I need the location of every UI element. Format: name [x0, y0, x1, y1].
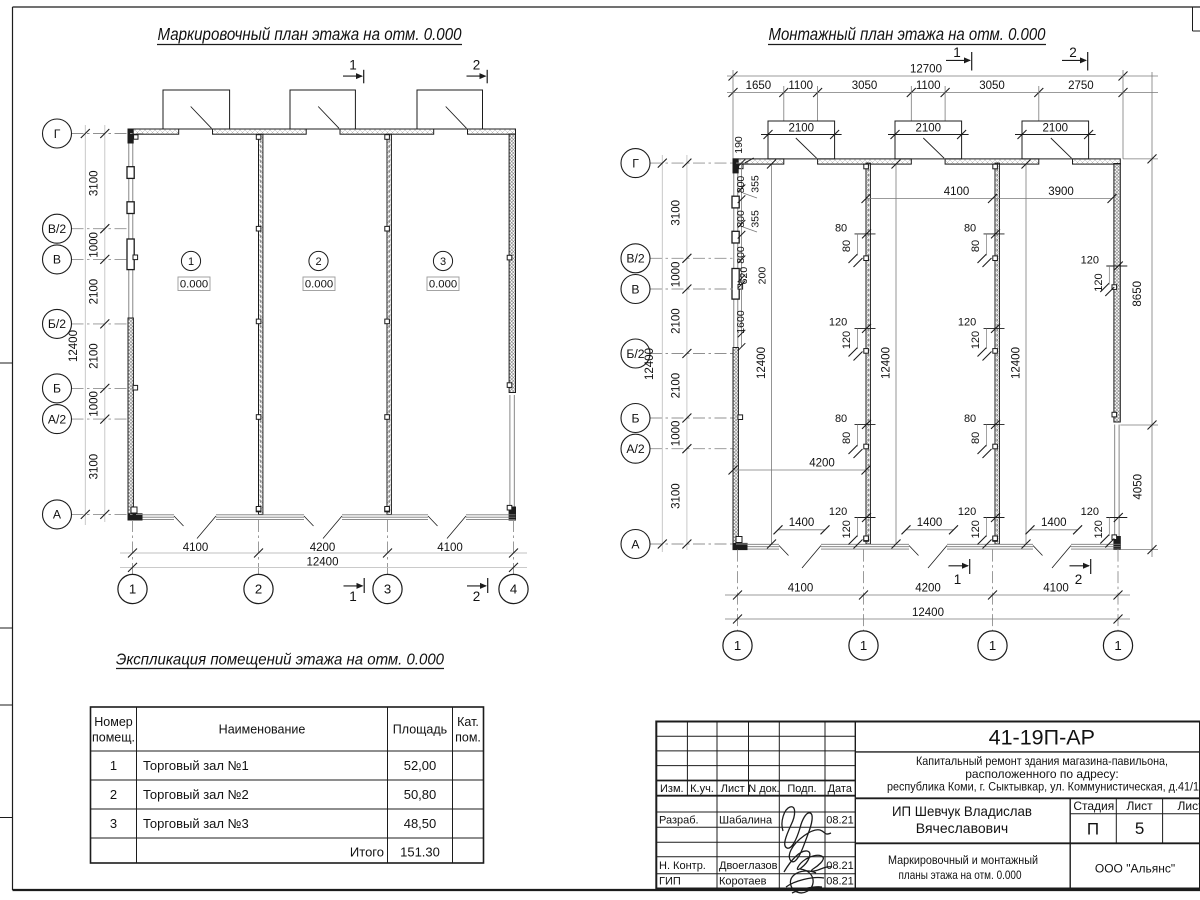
svg-text:В: В [631, 282, 639, 296]
svg-text:Площадь: Площадь [393, 723, 447, 737]
svg-text:4: 4 [510, 582, 517, 597]
svg-text:1600: 1600 [735, 310, 747, 334]
svg-text:5: 5 [1135, 819, 1144, 838]
svg-text:Торговый зал №3: Торговый зал №3 [143, 816, 249, 831]
svg-text:4100: 4100 [1043, 583, 1069, 595]
svg-text:1: 1 [860, 638, 867, 653]
svg-text:2100: 2100 [89, 279, 101, 305]
svg-text:1400: 1400 [917, 517, 943, 529]
svg-text:4200: 4200 [310, 542, 336, 554]
svg-text:08.21: 08.21 [826, 815, 854, 827]
svg-text:Дата: Дата [828, 783, 853, 795]
svg-text:Торговый зал №1: Торговый зал №1 [143, 758, 249, 773]
svg-text:12400: 12400 [1011, 347, 1023, 379]
svg-text:ИП Шевчук Владислав: ИП Шевчук Владислав [892, 803, 1032, 819]
svg-text:80: 80 [841, 240, 853, 252]
svg-text:А/2: А/2 [626, 442, 645, 456]
svg-text:1100: 1100 [788, 80, 813, 92]
svg-text:Лист: Лист [1127, 799, 1154, 813]
svg-text:Капитальный ремонт здания мага: Капитальный ремонт здания магазина-павил… [916, 754, 1168, 768]
svg-text:Изм.: Изм. [660, 783, 684, 795]
svg-text:Вячеславович: Вячеславович [916, 820, 1008, 836]
svg-text:3100: 3100 [671, 483, 683, 509]
svg-text:80: 80 [970, 240, 982, 252]
svg-text:4100: 4100 [788, 583, 814, 595]
svg-text:4200: 4200 [915, 583, 941, 595]
svg-text:1: 1 [349, 589, 357, 604]
svg-text:48,50: 48,50 [404, 816, 437, 831]
svg-text:1000: 1000 [671, 262, 683, 288]
svg-text:0.000: 0.000 [429, 279, 457, 291]
svg-text:80: 80 [835, 223, 847, 235]
svg-text:2100: 2100 [671, 308, 683, 334]
svg-text:12400: 12400 [68, 330, 80, 362]
svg-text:Экспликация помещений этажа на: Экспликация помещений этажа на отм. 0.00… [116, 652, 444, 669]
svg-text:1: 1 [129, 582, 136, 597]
svg-text:1: 1 [953, 45, 961, 60]
svg-text:4200: 4200 [809, 458, 835, 470]
svg-text:Монтажный план этажа на отм. 0: Монтажный план этажа на отм. 0.000 [769, 24, 1046, 44]
svg-text:12400: 12400 [912, 607, 944, 619]
svg-text:2: 2 [315, 256, 321, 268]
svg-text:1650: 1650 [746, 80, 772, 92]
svg-text:А: А [53, 508, 62, 522]
svg-text:4050: 4050 [1133, 474, 1145, 500]
svg-text:355: 355 [750, 175, 762, 193]
svg-text:12400: 12400 [756, 347, 768, 379]
svg-text:52,00: 52,00 [404, 758, 437, 773]
svg-text:помещ.: помещ. [92, 731, 135, 745]
svg-text:N док.: N док. [748, 783, 779, 795]
svg-text:120: 120 [1081, 255, 1099, 267]
svg-text:2: 2 [110, 787, 117, 802]
svg-text:Шабалина: Шабалина [719, 815, 773, 827]
svg-text:4100: 4100 [944, 186, 970, 198]
svg-text:4100: 4100 [437, 542, 463, 554]
svg-text:1: 1 [1114, 638, 1121, 653]
svg-text:2: 2 [1069, 45, 1077, 60]
svg-text:1400: 1400 [789, 517, 815, 529]
svg-text:2750: 2750 [1068, 80, 1094, 92]
svg-text:Листов: Листов [1178, 799, 1200, 813]
svg-text:355: 355 [750, 210, 762, 228]
svg-text:Подп.: Подп. [787, 783, 816, 795]
svg-text:Б/2: Б/2 [626, 347, 644, 361]
svg-text:П: П [1087, 820, 1099, 839]
svg-text:пом.: пом. [455, 731, 481, 745]
svg-text:3100: 3100 [89, 454, 101, 480]
svg-text:1: 1 [110, 758, 117, 773]
svg-text:2100: 2100 [89, 343, 101, 369]
svg-text:120: 120 [958, 506, 976, 518]
svg-text:Г: Г [632, 156, 639, 170]
svg-text:120: 120 [841, 331, 853, 349]
svg-text:2: 2 [1075, 572, 1083, 587]
svg-text:1: 1 [954, 572, 962, 587]
svg-text:К.уч.: К.уч. [690, 783, 714, 795]
svg-text:1100: 1100 [916, 80, 941, 92]
svg-text:Б/2: Б/2 [48, 317, 66, 331]
svg-text:12700: 12700 [910, 64, 942, 76]
svg-text:планы этажа на отм. 0.000: планы этажа на отм. 0.000 [899, 868, 1022, 882]
svg-text:Торговый зал №2: Торговый зал №2 [143, 787, 249, 802]
svg-text:Наименование: Наименование [219, 723, 306, 737]
svg-text:3: 3 [440, 256, 446, 268]
svg-text:А/2: А/2 [48, 412, 67, 426]
svg-text:800: 800 [735, 176, 747, 194]
svg-text:08.21: 08.21 [826, 860, 854, 872]
svg-text:Маркировочный план этажа на от: Маркировочный план этажа на отм. 0.000 [158, 24, 462, 44]
svg-text:1: 1 [989, 638, 996, 653]
svg-text:В: В [53, 253, 61, 267]
svg-text:8650: 8650 [1132, 281, 1144, 307]
svg-text:2100: 2100 [1043, 123, 1069, 135]
svg-text:1000: 1000 [671, 421, 683, 447]
svg-text:80: 80 [835, 413, 847, 425]
svg-text:ГИП: ГИП [659, 876, 681, 888]
svg-text:41-19П-АР: 41-19П-АР [989, 726, 1095, 750]
svg-text:2100: 2100 [916, 123, 942, 135]
svg-text:620: 620 [738, 267, 750, 285]
svg-text:А: А [631, 537, 640, 551]
svg-text:190: 190 [733, 136, 745, 154]
svg-text:В/2: В/2 [48, 222, 67, 236]
svg-text:3100: 3100 [89, 171, 101, 197]
svg-text:Коротаев: Коротаев [719, 876, 767, 888]
svg-text:80: 80 [841, 432, 853, 444]
svg-text:800: 800 [735, 246, 747, 264]
svg-text:200: 200 [757, 267, 769, 285]
svg-text:80: 80 [964, 223, 976, 235]
svg-text:2: 2 [473, 58, 481, 73]
svg-text:Маркировочный и монтажный: Маркировочный и монтажный [888, 853, 1038, 867]
svg-text:3: 3 [384, 582, 391, 597]
svg-text:1: 1 [734, 638, 741, 653]
svg-text:Стадия: Стадия [1073, 799, 1114, 813]
svg-text:1000: 1000 [89, 391, 101, 417]
svg-text:12400: 12400 [307, 556, 339, 568]
svg-text:80: 80 [964, 413, 976, 425]
svg-text:12400: 12400 [644, 348, 656, 380]
svg-text:151.30: 151.30 [400, 845, 440, 860]
svg-text:ООО "Альянс": ООО "Альянс" [1095, 862, 1175, 876]
svg-text:1: 1 [349, 58, 357, 73]
svg-text:1400: 1400 [1041, 517, 1067, 529]
svg-text:08.21: 08.21 [826, 876, 854, 888]
svg-text:Двоеглазов: Двоеглазов [719, 860, 778, 872]
svg-text:2100: 2100 [789, 123, 815, 135]
svg-text:120: 120 [1093, 520, 1105, 538]
svg-text:12400: 12400 [881, 347, 893, 379]
svg-text:120: 120 [829, 317, 847, 329]
svg-text:республика Коми, г. Сыктывкар,: республика Коми, г. Сыктывкар, ул. Комму… [887, 780, 1199, 794]
svg-text:Б: Б [632, 411, 640, 425]
svg-text:В/2: В/2 [626, 252, 645, 266]
svg-text:Разраб.: Разраб. [659, 815, 699, 827]
svg-text:Лист: Лист [721, 783, 745, 795]
svg-text:1000: 1000 [89, 232, 101, 258]
svg-text:2100: 2100 [671, 373, 683, 399]
svg-text:3100: 3100 [671, 200, 683, 226]
svg-text:3050: 3050 [852, 80, 878, 92]
svg-text:2: 2 [473, 589, 481, 604]
svg-text:50,80: 50,80 [404, 787, 437, 802]
svg-text:3050: 3050 [979, 80, 1005, 92]
svg-text:Итого: Итого [350, 845, 384, 860]
svg-text:800: 800 [735, 210, 747, 228]
svg-text:Номер: Номер [94, 715, 133, 729]
svg-text:3: 3 [110, 816, 117, 831]
svg-text:120: 120 [958, 317, 976, 329]
svg-text:Н. Контр.: Н. Контр. [659, 860, 706, 872]
svg-text:0.000: 0.000 [180, 279, 208, 291]
svg-text:4100: 4100 [183, 542, 209, 554]
svg-text:2: 2 [255, 582, 262, 597]
svg-text:80: 80 [970, 432, 982, 444]
svg-text:3900: 3900 [1048, 186, 1074, 198]
svg-text:Б: Б [53, 382, 61, 396]
svg-text:120: 120 [829, 506, 847, 518]
svg-text:0.000: 0.000 [305, 279, 333, 291]
svg-text:120: 120 [970, 520, 982, 538]
svg-text:120: 120 [841, 520, 853, 538]
svg-text:120: 120 [1081, 506, 1099, 518]
svg-text:120: 120 [970, 331, 982, 349]
svg-text:Кат.: Кат. [457, 715, 479, 729]
svg-text:1: 1 [188, 256, 194, 268]
svg-text:Г: Г [54, 127, 61, 141]
